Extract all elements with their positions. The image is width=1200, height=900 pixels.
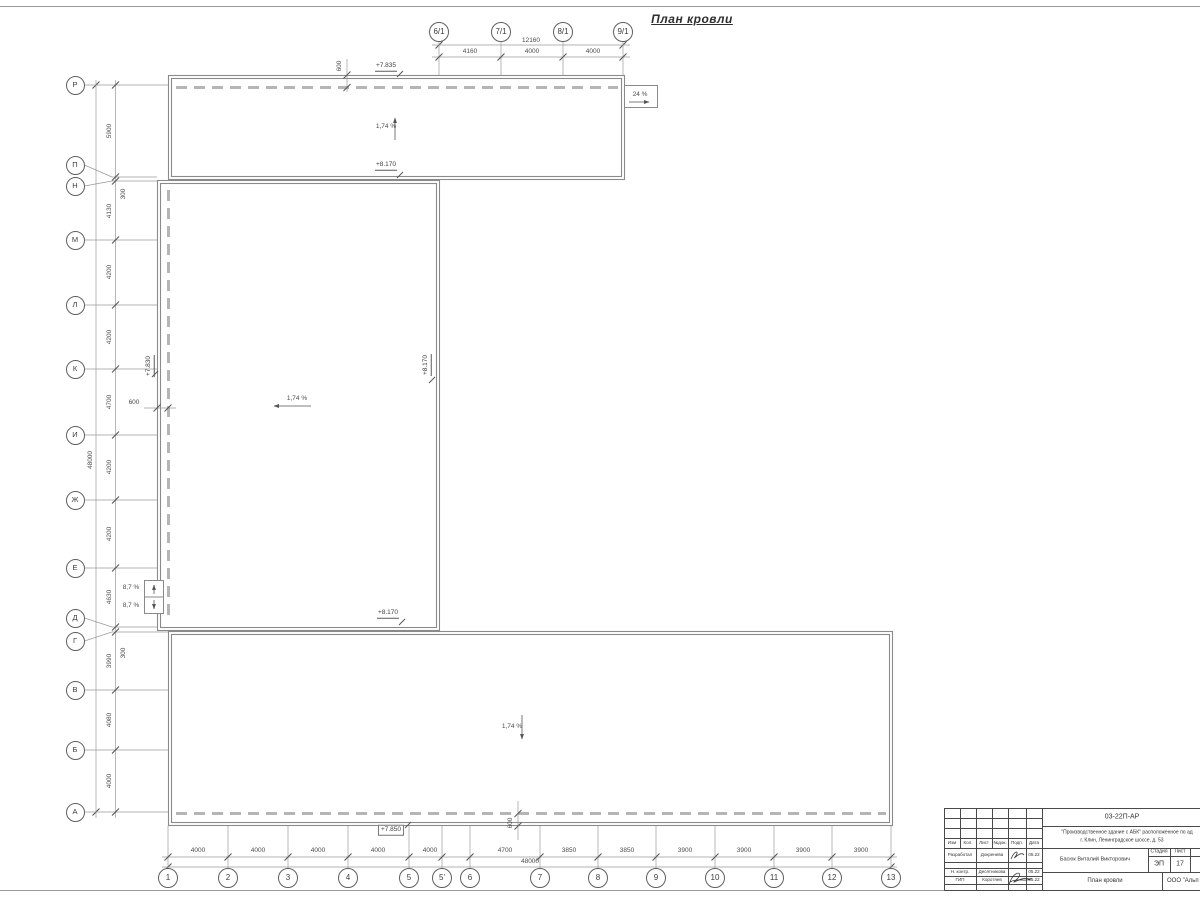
titleblock-column-header: Дата bbox=[1029, 841, 1039, 846]
slope-label: 1,74 % bbox=[287, 396, 307, 403]
axis-bubble-top: 6/1 bbox=[429, 22, 449, 42]
titleblock-sheet-label: Лист bbox=[1175, 850, 1186, 855]
dimension-label: 4200 bbox=[107, 330, 114, 344]
roof-dashed-lines bbox=[169, 88, 887, 814]
axis-bubble-left: М bbox=[66, 231, 85, 250]
axis-bubble-bottom: 5' bbox=[432, 868, 452, 888]
dimension-label: 5900 bbox=[107, 124, 114, 138]
dimension-label: 4000 bbox=[423, 848, 437, 855]
titleblock-drawing-title: План кровли bbox=[1087, 878, 1122, 884]
dimension-label: 4000 bbox=[107, 774, 114, 788]
axis-bubble-bottom: 13 bbox=[881, 868, 901, 888]
axis-bubble-bottom: 7 bbox=[530, 868, 550, 888]
dimension-label: 4000 bbox=[371, 848, 385, 855]
titleblock-column-header: №док. bbox=[993, 841, 1006, 846]
dimension-label: 4130 bbox=[107, 204, 114, 218]
dimension-label: 3990 bbox=[107, 654, 114, 668]
axis-bubble-bottom: 8 bbox=[588, 868, 608, 888]
dimension-label: 4000 bbox=[525, 49, 539, 56]
elevation-mark: +8.170 bbox=[375, 162, 397, 171]
titleblock-date: 05.22 bbox=[1028, 870, 1039, 875]
building-outlines bbox=[158, 76, 893, 826]
axis-bubble-left: Г bbox=[66, 632, 85, 651]
elevation-mark: +8.170 bbox=[377, 610, 399, 619]
axis-bubble-left: В bbox=[66, 681, 85, 700]
dimension-label: 3900 bbox=[678, 848, 692, 855]
slope-label: 8,7 % bbox=[123, 603, 140, 610]
page-title: План кровли bbox=[651, 12, 733, 26]
axis-bubble-top: 8/1 bbox=[553, 22, 573, 42]
dimension-label: 3900 bbox=[737, 848, 751, 855]
dimension-label: 4700 bbox=[107, 395, 114, 409]
axis-bubble-left: Е bbox=[66, 559, 85, 578]
sheet-frame bbox=[0, 7, 1200, 891]
dimension-label: 48000 bbox=[521, 859, 539, 866]
axis-bubble-left: Р bbox=[66, 76, 85, 95]
titleblock-role: Разработал bbox=[948, 853, 973, 858]
axis-bubble-left: П bbox=[66, 156, 85, 175]
dimension-label: 4700 bbox=[498, 848, 512, 855]
titleblock-company-name: ООО "Альп bbox=[1167, 878, 1199, 884]
dimension-label: 600 bbox=[337, 61, 344, 72]
titleblock-column-header: Изм bbox=[948, 841, 956, 846]
titleblock-project-name-line2: г. Клин, Ленинградское шоссе, д. 53 bbox=[1080, 839, 1163, 844]
slope-label: 1,74 % bbox=[376, 124, 396, 131]
axis-bubble-bottom: 5 bbox=[399, 868, 419, 888]
dimension-label: 4000 bbox=[311, 848, 325, 855]
axis-bubble-left: К bbox=[66, 360, 85, 379]
titleblock-document-code: 03-22П-АР bbox=[1105, 814, 1140, 821]
slope-arrows bbox=[274, 118, 522, 739]
axis-bubble-bottom: 9 bbox=[646, 868, 666, 888]
dimension-label: 300 bbox=[121, 189, 128, 200]
titleblock-person-name: Докренева bbox=[981, 853, 1003, 858]
titleblock-role: ГИП bbox=[956, 878, 965, 883]
dimension-label: 600 bbox=[508, 818, 515, 829]
dimension-label: 3850 bbox=[562, 848, 576, 855]
dimension-label: 4630 bbox=[107, 590, 114, 604]
slope-label: 8,7 % bbox=[123, 585, 140, 592]
titleblock-author-name: Басюк Виталий Викторович bbox=[1060, 857, 1130, 863]
axis-bubble-bottom: 2 bbox=[218, 868, 238, 888]
titleblock-date: 05.22 bbox=[1028, 853, 1039, 858]
titleblock-stage-value: ЭП bbox=[1154, 861, 1164, 868]
axis-bubble-left: Б bbox=[66, 741, 85, 760]
axis-bubble-bottom: 12 bbox=[822, 868, 842, 888]
axis-bubble-left: Д bbox=[66, 609, 85, 628]
titleblock-sheet-number: 17 bbox=[1176, 861, 1184, 868]
axis-bubble-bottom: 3 bbox=[278, 868, 298, 888]
axis-bubble-top: 9/1 bbox=[613, 22, 633, 42]
axis-bubble-top: 7/1 bbox=[491, 22, 511, 42]
dimension-label: 600 bbox=[129, 400, 140, 407]
bottom-building-outer bbox=[169, 632, 893, 826]
drawing-sheet: План кровли 03-22П-АР "Производственное … bbox=[0, 0, 1200, 900]
elevation-mark: +7.830 bbox=[146, 355, 155, 377]
axis-bubble-bottom: 6 bbox=[460, 868, 480, 888]
axis-bubble-bottom: 10 bbox=[705, 868, 725, 888]
dimension-label: 48000 bbox=[88, 451, 95, 469]
titleblock-column-header: Лист bbox=[979, 841, 989, 846]
dimension-label: 4160 bbox=[463, 49, 477, 56]
titleblock-person-name: Коротяев bbox=[982, 878, 1001, 883]
titleblock-date: 05.22 bbox=[1028, 878, 1039, 883]
dimension-label: 3850 bbox=[620, 848, 634, 855]
middle-building-inner bbox=[161, 184, 437, 628]
dimension-label: 4200 bbox=[107, 460, 114, 474]
axis-bubble-left: Л bbox=[66, 296, 85, 315]
elevation-mark: +7.850 bbox=[378, 825, 404, 836]
dimension-label: 4000 bbox=[191, 848, 205, 855]
axis-bubble-left: И bbox=[66, 426, 85, 445]
drawing-canvas bbox=[0, 0, 1200, 900]
dimension-label: 4000 bbox=[251, 848, 265, 855]
axis-bubble-left: Ж bbox=[66, 491, 85, 510]
elevation-mark: +8.170 bbox=[423, 354, 432, 376]
titleblock-person-name: Десятникова bbox=[979, 870, 1006, 875]
titleblock-column-header: Кол. bbox=[964, 841, 973, 846]
slope-label: 24 % bbox=[633, 92, 648, 99]
slope-box-87 bbox=[145, 581, 164, 614]
axis-bubble-left: Н bbox=[66, 177, 85, 196]
slope-label: 1,74 % bbox=[502, 724, 522, 731]
axis-bubble-bottom: 11 bbox=[764, 868, 784, 888]
bottom-building-inner bbox=[172, 635, 890, 823]
dimension-label: 300 bbox=[121, 648, 128, 659]
titleblock-role: Н. контр. bbox=[951, 870, 970, 875]
elevation-ticks bbox=[152, 71, 435, 828]
dimension-label: 4000 bbox=[586, 49, 600, 56]
dimension-label: 4200 bbox=[107, 265, 114, 279]
elevation-mark: +7.835 bbox=[375, 63, 397, 72]
dimension-label: 3900 bbox=[854, 848, 868, 855]
dimension-label: 4080 bbox=[107, 713, 114, 727]
dimension-label: 4200 bbox=[107, 527, 114, 541]
dimension-label: 3900 bbox=[796, 848, 810, 855]
titleblock-column-header: Подп. bbox=[1011, 841, 1023, 846]
titleblock-project-name-line1: "Производственное здание с АБК" располож… bbox=[1061, 831, 1192, 836]
middle-building-outer bbox=[158, 181, 440, 631]
titleblock-stage-label: Стадия bbox=[1150, 850, 1167, 855]
axis-bubble-bottom: 4 bbox=[338, 868, 358, 888]
axis-bubble-left: А bbox=[66, 803, 85, 822]
dimension-label: 12160 bbox=[522, 38, 540, 45]
axis-bubble-bottom: 1 bbox=[158, 868, 178, 888]
